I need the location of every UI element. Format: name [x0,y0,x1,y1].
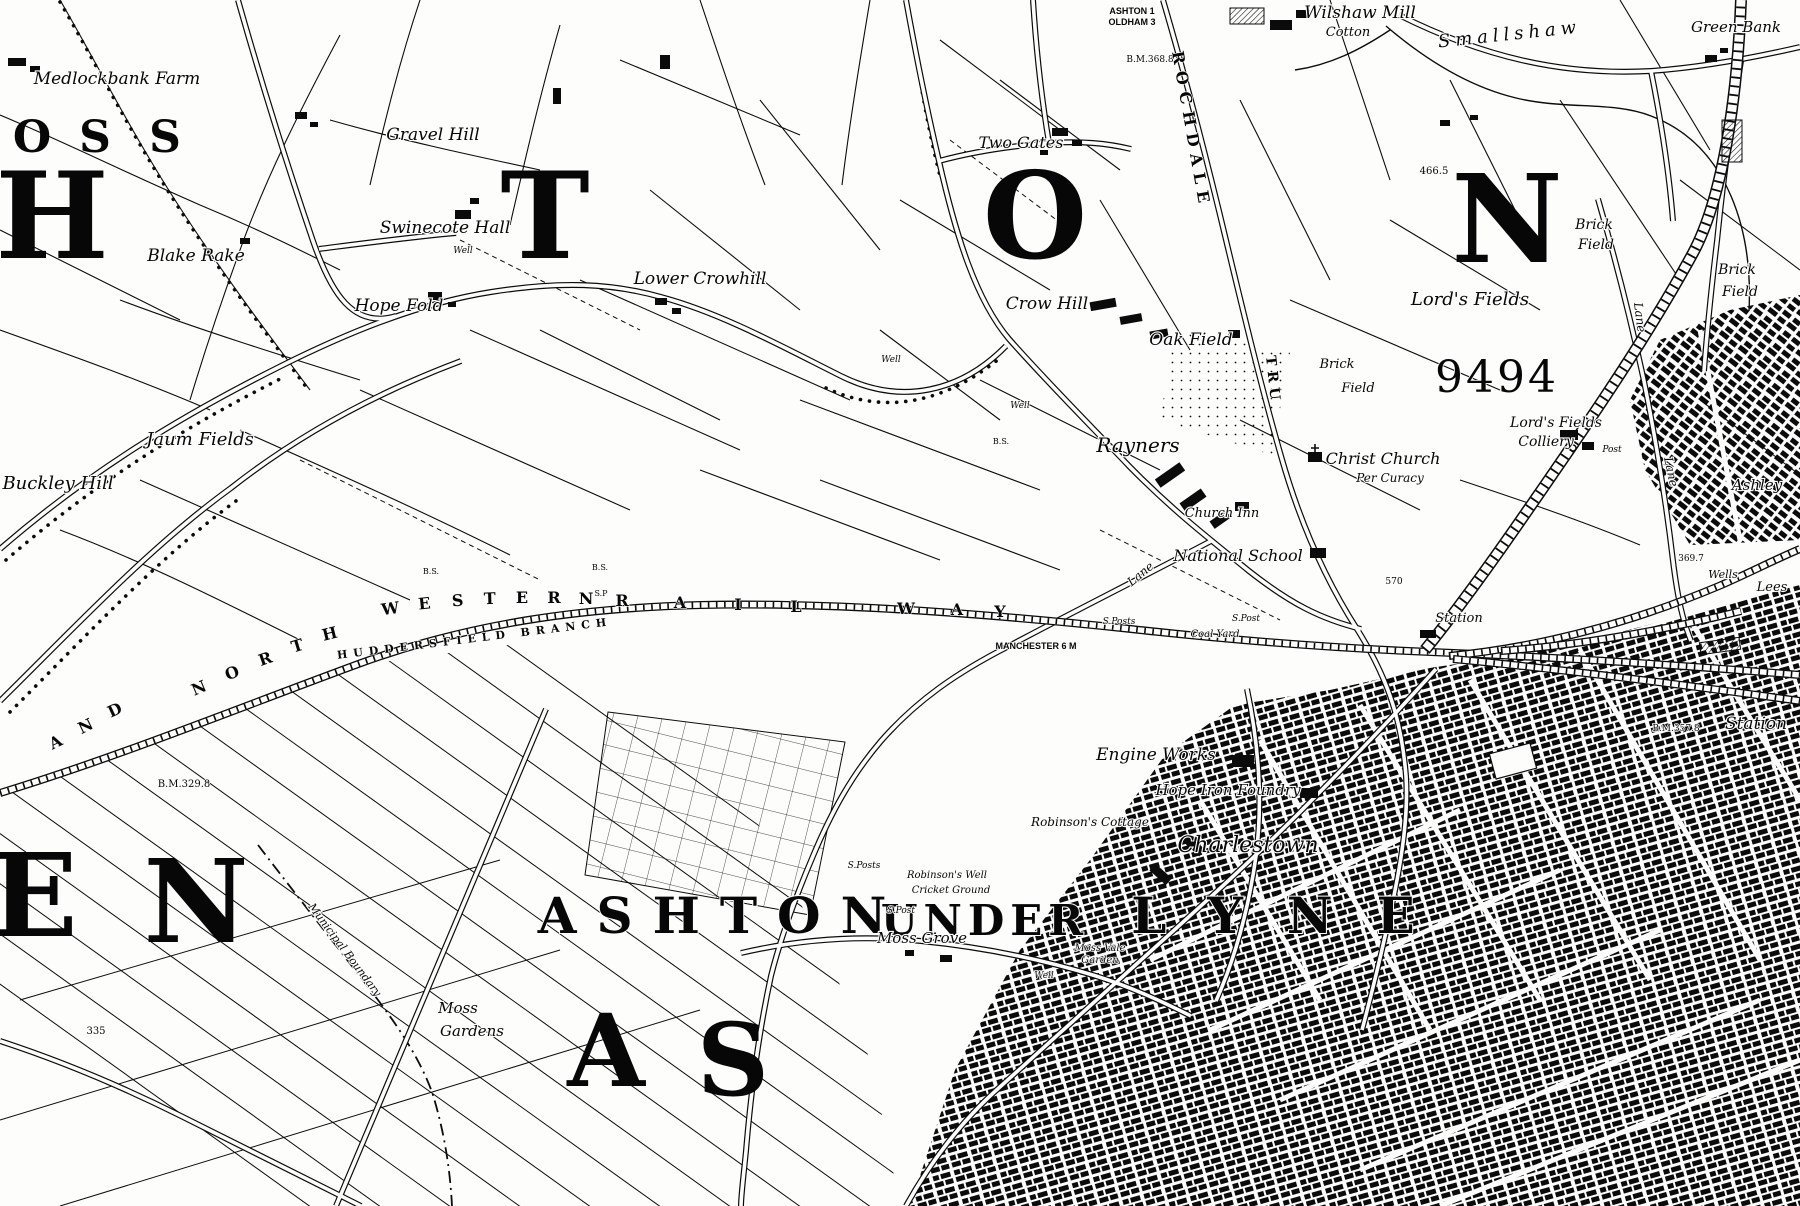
map-label: Well [1034,971,1054,981]
map-label: Jaum Fields [142,429,254,450]
map-label: Garden [1081,955,1119,966]
map-label: 9494 [1435,352,1559,403]
map-label: H [0,146,109,287]
map-label: B.S. [993,437,1009,446]
map-label: E [417,593,431,613]
map-label: Hope Iron Foundry [1154,781,1301,799]
map-label: 335 [86,1026,105,1037]
map-label: OLDHAM 3 [1109,17,1156,27]
map-label: Wells [1708,568,1738,581]
map-label: Post [1601,445,1622,455]
map-label: Rayners [1095,433,1179,457]
map-label: Two Gates [979,133,1064,152]
map-label: Ashley [1730,476,1783,494]
map-label: W [896,599,916,618]
map-label: 570 [1385,577,1402,587]
map-label: Gardens [440,1022,504,1040]
map-label: Hope Fold [354,296,444,316]
map-label: Cricket Ground [912,885,990,896]
map-label: W [379,598,401,620]
map-label: Coal Yard [1191,629,1240,640]
map-label: Robinson's Well [906,870,987,881]
map-label: Wilshaw Mill [1304,3,1416,23]
map-label: N [143,835,248,970]
map-label: E [516,588,528,607]
map-label: LYNE [1131,886,1458,945]
map-label: Well [1010,401,1030,411]
map-label: N [1451,147,1563,291]
map-label: S.P [594,589,608,598]
map-label: Field [1577,237,1614,253]
map-canvas: OSSHTONENASASHTONUNDERLYNEMedlockbank Fa… [0,0,1800,1206]
map-label: MANCHESTER 6 M [995,641,1076,651]
map-label: S.Post [887,906,915,916]
map-label: A [673,593,687,612]
map-label: I [734,595,741,614]
map-label: Green Bank [1691,18,1781,36]
map-label: S [697,1001,769,1119]
map-label: B.M.329.8 [158,779,211,790]
map-label: Colliery [1518,434,1575,450]
map-label: N [579,589,594,608]
map-label: ASHTON [537,886,907,945]
map-label: Swinecote Hall [380,218,511,238]
map-label: L [790,597,801,616]
map-label: O [983,146,1088,287]
map-label: T [484,589,497,608]
map-label: S.Posts [1103,617,1136,627]
map-label: S [149,112,181,163]
map-label: National School [1172,546,1302,565]
map-label: Well [453,246,473,256]
map-label: Well [881,355,901,365]
map-label: A [566,992,646,1110]
map-label: B.M.368.8 [1126,55,1174,65]
map-label: Crow Hill [1006,294,1088,314]
map-label: Brick [1574,217,1613,233]
map-label: B.S. [592,563,608,572]
map-label: Field [1340,381,1374,396]
map-label: B.M.357.8 [1652,724,1700,734]
map-label: S.Posts [848,861,881,871]
map-label: S [451,591,464,611]
map-label: Cotton [1326,25,1370,40]
map-label: Moss Grove [876,929,967,947]
map-label: B.S. [423,567,439,576]
map-label: Lord's Fields [1410,289,1529,310]
map-label: ASHTON 1 [1109,6,1154,16]
map-label: Station [1435,611,1482,626]
map-label: Y [993,602,1006,621]
map-label: S.Post [1232,614,1260,624]
map-label: Moss Vale [1073,943,1125,954]
map-label: Field [1721,284,1758,300]
map-label: Brick [1318,357,1354,372]
map-label: T [500,146,589,287]
map-label: Church Inn [1185,506,1260,521]
map-label: Lower Crowhill [633,269,767,289]
map-label: Lees [1756,580,1788,595]
map-label: Christ Church [1326,449,1441,468]
map-label: Medlockbank Farm [33,69,201,89]
map-label: Per Curacy [1355,471,1424,485]
map-label: Engine Works [1095,745,1216,765]
map-label: A [950,600,964,619]
map-label: R [547,588,561,607]
map-label: Brick [1717,262,1756,278]
map-label: Gravel Hill [386,125,479,145]
map-label: Lord's Fields [1509,415,1602,431]
ordnance-survey-map: OSSHTONENASASHTONUNDERLYNEMedlockbank Fa… [0,0,1800,1206]
map-label: Moss [437,999,478,1017]
map-label: Charlestown [1177,833,1318,858]
map-label: Robinson's Cottage [1030,815,1149,829]
map-label: Oak Field [1149,330,1233,350]
map-label: Station [1725,714,1787,734]
map-label: 369.7 [1678,554,1704,564]
map-label: E [0,829,78,964]
map-label: 466.5 [1420,166,1449,177]
map-label: R [615,591,629,610]
map-label: Buckley Hill [1,473,113,494]
map-label: Blake Rake [146,246,245,266]
